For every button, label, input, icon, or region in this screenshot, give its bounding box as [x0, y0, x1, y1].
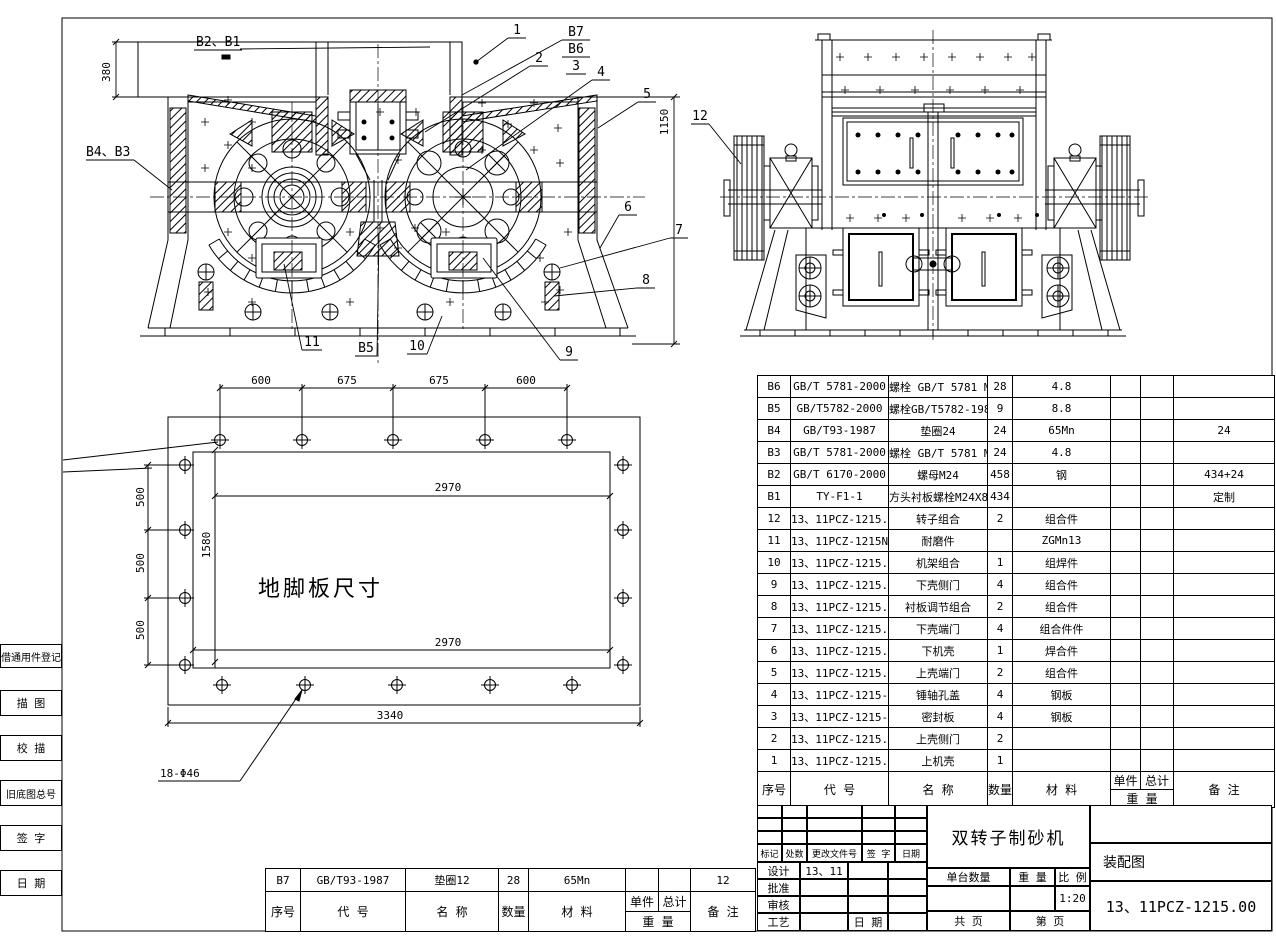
callout-12: 12 [692, 109, 708, 124]
sign-cell [800, 896, 848, 913]
rev-header-docno: 更改文件号 [807, 844, 862, 862]
table-row: B7GB/T93-1987垫圈122865Mn12 [266, 869, 756, 892]
xbom-header-remark: 备 注 [691, 892, 756, 932]
table-row: B3GB/T 5781-2000螺栓 GB/T 5781 M24X80244.8 [758, 442, 1275, 464]
table-row: 913、11PCZ-1215.07下壳侧门4组合件 [758, 574, 1275, 596]
machine-title: 双转子制砂机 [927, 805, 1090, 868]
bom-header-name: 名 称 [889, 772, 988, 808]
margin-box-borrow-record: 借通用件登记 [0, 644, 62, 668]
front-view [138, 42, 645, 366]
rev-cell [807, 805, 862, 818]
sign-value-design: 13、11 [800, 862, 848, 879]
rev-cell [895, 818, 927, 831]
table-row: 413、11PCZ-1215-2锤轴孔盖4钢板 [758, 684, 1275, 706]
sign-label-design: 设计 [757, 862, 800, 879]
sign-cell [888, 862, 927, 879]
rev-cell [895, 805, 927, 818]
sign-cell [888, 879, 927, 896]
dim-500-2: 500 [134, 553, 147, 573]
margin-box-signature: 签 字 [0, 825, 62, 851]
bom-header-unit: 单件 [1111, 772, 1141, 790]
extra-bom-header: 序号 代 号 名 称 数量 材 料 单件 总计 备 注 重 量 [266, 892, 756, 932]
bom-header-qty: 数量 [988, 772, 1013, 808]
callout-3: 3 [572, 59, 580, 74]
doc-type: 装配图 [1090, 843, 1272, 881]
dim-600-2: 600 [516, 374, 536, 387]
bom-header-total: 总计 [1141, 772, 1174, 790]
rev-header-count: 处数 [782, 844, 807, 862]
bom-table: B6GB/T 5781-2000螺栓 GB/T 5781 M12X35284.8… [757, 375, 1275, 808]
sign-label-approve: 批准 [757, 879, 800, 896]
table-row: B1TY-F1-1方头衬板螺栓M24X80434定制 [758, 486, 1275, 508]
table-row: 1213、11PCZ-1215.09转子组合2组合件 [758, 508, 1275, 530]
rev-cell [807, 831, 862, 844]
dim-1150: 1150 [658, 109, 671, 136]
rev-cell [782, 831, 807, 844]
callout-9: 9 [565, 345, 573, 360]
callout-b6: B6 [568, 42, 584, 57]
cad-drawing-sheet: { "drawing": { "title": "双转子制砂机", "doc_t… [0, 0, 1276, 941]
bom-header-seq: 序号 [758, 772, 791, 808]
table-row: B5GB/T5782-2000螺栓GB/T5782-1988 M30X19098… [758, 398, 1275, 420]
bom-header: 序号 代 号 名 称 数量 材 料 单件 总计 备 注 重 量 [758, 772, 1275, 808]
dim-675-2: 675 [429, 374, 449, 387]
rev-cell [757, 831, 782, 844]
xbom-header-weight: 重 量 [626, 912, 691, 932]
side-view [720, 30, 1150, 340]
sign-label-check: 审核 [757, 896, 800, 913]
sheet-total-label: 共 页 [927, 911, 1010, 931]
table-row: 313、11PCZ-1215-1密封板4钢板 [758, 706, 1275, 728]
table-row: 613、11PCZ-1215.04下机壳1焊合件 [758, 640, 1275, 662]
sign-label-process: 工艺 [757, 913, 800, 931]
callout-10: 10 [409, 339, 425, 354]
bom-header-remark: 备 注 [1174, 772, 1275, 808]
dim-2970-top: 2970 [435, 481, 462, 494]
label-18-holes: 18-Φ46 [160, 767, 200, 780]
foundation-plate-label: 地脚板尺寸 [258, 577, 383, 602]
rev-header-sign: 签 字 [862, 844, 895, 862]
sign-cell [800, 879, 848, 896]
dim-675-1: 675 [337, 374, 357, 387]
rev-header-date: 日期 [895, 844, 927, 862]
xbom-header-material: 材 料 [529, 892, 626, 932]
dim-600-1: 600 [251, 374, 271, 387]
dim-1580: 1580 [200, 532, 213, 559]
xbom-header-total: 总计 [659, 892, 691, 912]
sign-cell [848, 862, 888, 879]
weight-value [1010, 886, 1055, 911]
table-row: 713、11PCZ-1215.05下壳端门4组合件件 [758, 618, 1275, 640]
margin-box-check-tracing: 校 描 [0, 735, 62, 761]
table-row: B2GB/T 6170-2000螺母M24458钢434+24 [758, 464, 1275, 486]
scale-value: 1:20 [1055, 886, 1090, 911]
anchor-bolts [176, 431, 632, 694]
table-row: 113、11PCZ-1215.01上机壳1 [758, 750, 1275, 772]
qty-label: 单台数量 [927, 868, 1010, 886]
title-block: 标记 处数 更改文件号 签 字 日期 设计 13、11 批准 审核 工艺 日 期… [757, 805, 1272, 931]
rev-cell [782, 805, 807, 818]
sheet-no-label: 第 页 [1010, 911, 1090, 931]
rev-cell [757, 818, 782, 831]
sign-cell [800, 913, 848, 931]
callout-6: 6 [624, 200, 632, 215]
table-row: 813、11PCZ-1215.06衬板调节组合2组合件 [758, 596, 1275, 618]
xbom-header-qty: 数量 [499, 892, 529, 932]
xbom-header-unit: 单件 [626, 892, 659, 912]
xbom-header-seq: 序号 [266, 892, 301, 932]
xbom-header-code: 代 号 [301, 892, 406, 932]
callout-4: 4 [597, 65, 605, 80]
rev-cell [862, 831, 895, 844]
dim-380: 380 [100, 62, 113, 82]
callout-1: 1 [513, 23, 521, 38]
callout-b7: B7 [568, 25, 584, 40]
sign-date-label: 日 期 [848, 913, 888, 931]
rev-header-mark: 标记 [757, 844, 782, 862]
extra-bom-rows: B7GB/T93-1987垫圈122865Mn12 [266, 869, 756, 892]
callout-8: 8 [642, 273, 650, 288]
qty-value [927, 886, 1010, 911]
sign-cell [888, 913, 927, 931]
dim-3340: 3340 [377, 709, 404, 722]
extra-bom-table: B7GB/T93-1987垫圈122865Mn12 序号 代 号 名 称 数量 … [265, 868, 756, 932]
rev-cell [807, 818, 862, 831]
rev-cell [757, 805, 782, 818]
table-row: 1113、11PCZ-1215NM耐磨件ZGMn13 [758, 530, 1275, 552]
callout-7: 7 [675, 223, 683, 238]
sign-cell [848, 896, 888, 913]
scale-label: 比 例 [1055, 868, 1090, 886]
sign-cell [888, 896, 927, 913]
table-row: 513、11PCZ-1215.03上壳端门2组合件 [758, 662, 1275, 684]
bom-header-material: 材 料 [1013, 772, 1111, 808]
rev-cell [862, 805, 895, 818]
dim-500-1: 500 [134, 487, 147, 507]
weight-label: 重 量 [1010, 868, 1055, 886]
table-row: B6GB/T 5781-2000螺栓 GB/T 5781 M12X35284.8 [758, 376, 1275, 398]
dim-500-3: 500 [134, 620, 147, 640]
drawing-number: 13、11PCZ-1215.00 [1090, 881, 1272, 931]
margin-box-date: 日 期 [0, 870, 62, 896]
margin-box-tracing: 描 图 [0, 690, 62, 716]
rev-cell [862, 818, 895, 831]
margin-box-old-drawing-no: 旧底图总号 [0, 780, 62, 806]
callout-b4-b3: B4、B3 [86, 145, 130, 160]
table-row: 213、11PCZ-1215.02上壳侧门2 [758, 728, 1275, 750]
rev-cell [895, 831, 927, 844]
bom-header-code: 代 号 [791, 772, 889, 808]
table-row: B4GB/T93-1987垫圈242465Mn24 [758, 420, 1275, 442]
callout-2: 2 [535, 51, 543, 66]
xbom-header-name: 名 称 [406, 892, 499, 932]
rev-cell [782, 818, 807, 831]
callout-b2-b1: B2、B1 [196, 35, 240, 50]
callout-b5: B5 [358, 341, 374, 356]
callout-5: 5 [643, 87, 651, 102]
sign-cell [848, 879, 888, 896]
table-row: 1013、11PCZ-1215.08机架组合1组焊件 [758, 552, 1275, 574]
bom-rows: B6GB/T 5781-2000螺栓 GB/T 5781 M12X35284.8… [758, 376, 1275, 772]
callout-11: 11 [304, 335, 320, 350]
dim-2970-bottom: 2970 [435, 636, 462, 649]
company-cell [1090, 805, 1272, 843]
